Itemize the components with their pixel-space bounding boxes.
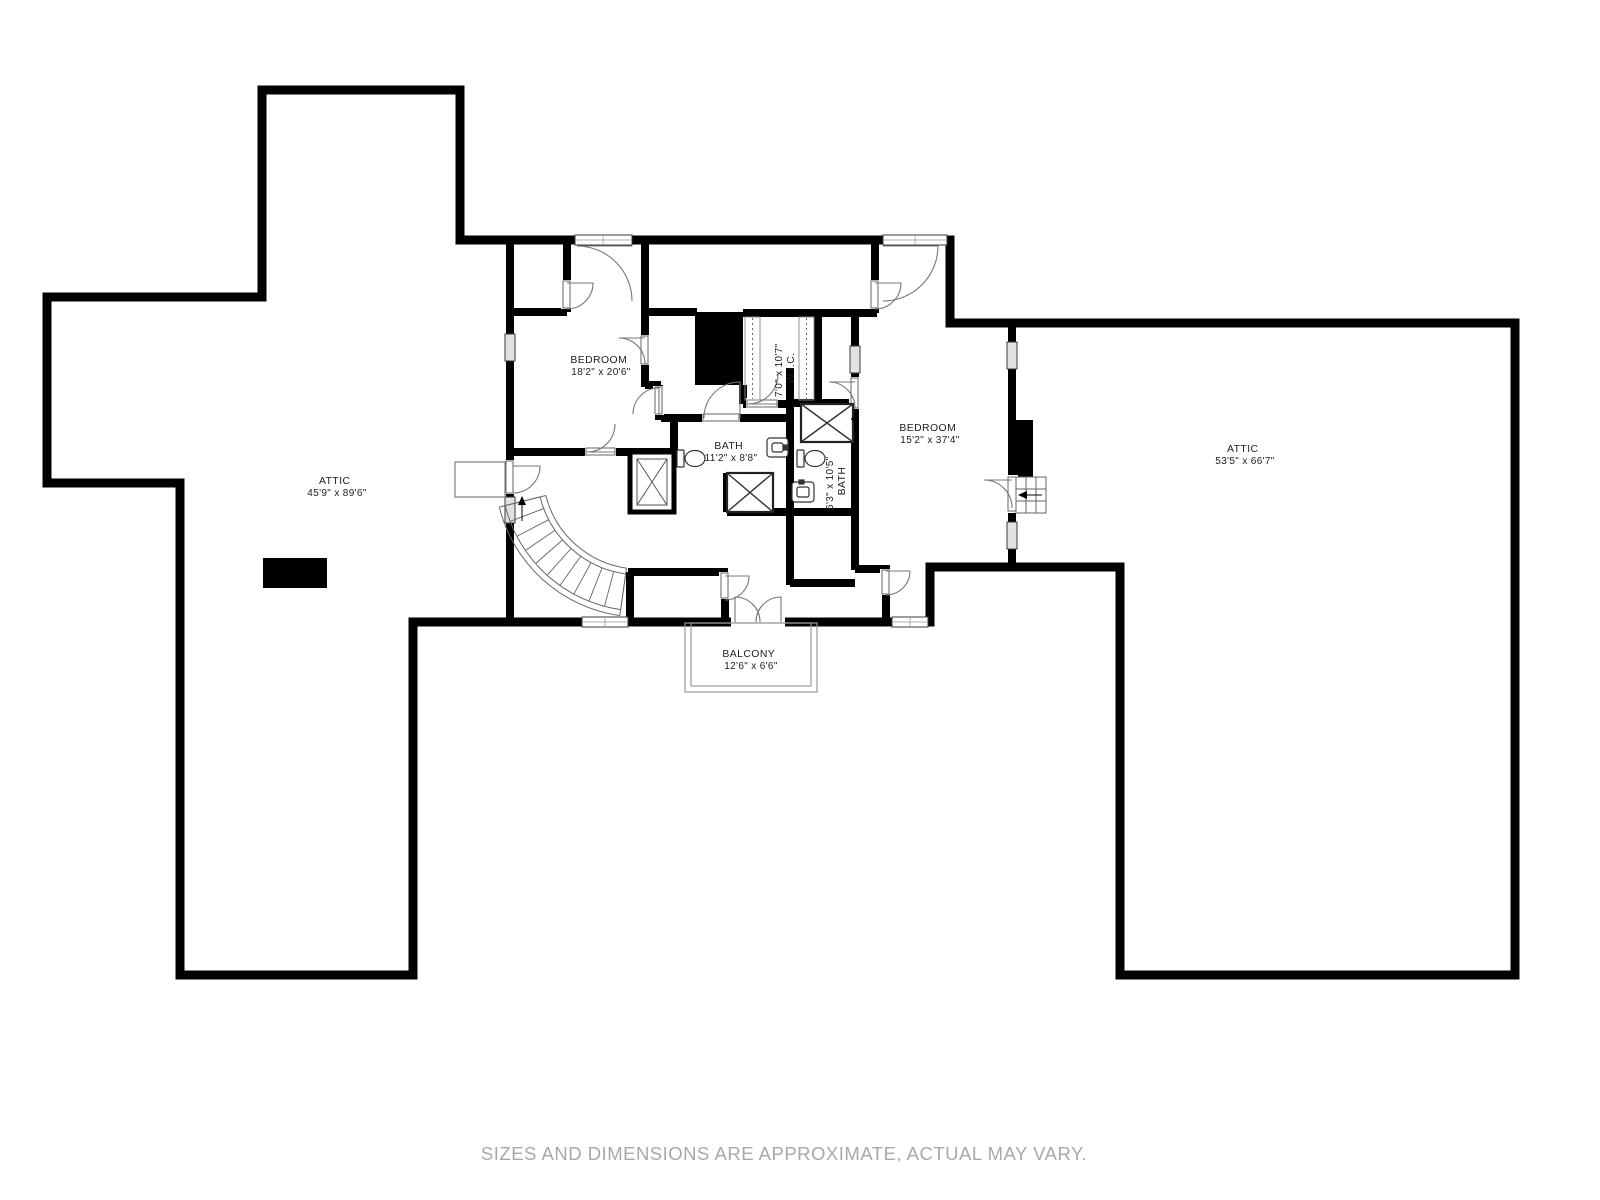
room-label-bath-main: BATH 11'2" x 8'8" [705,436,758,464]
room-label-attic-right: ATTIC 53'5" x 66'7" [1215,439,1274,467]
toilet-main [677,450,705,467]
disclaimer-text: SIZES AND DIMENSIONS ARE APPROXIMATE, AC… [0,1143,1568,1165]
sink-second [792,480,814,502]
shower-second-bath [801,404,857,442]
bathtub [727,473,773,512]
attic-stair-right [1016,477,1046,513]
curved-staircase [499,496,626,616]
room-label-balcony: BALCONY 12'6" x 6'6" [722,644,779,672]
room-label-attic-left: ATTIC 45'9" x 89'6" [307,471,366,499]
chimney-left-attic [263,558,327,588]
stair-hall-dormer [455,462,505,497]
room-label-bedroom-left: BEDROOM 18'2" x 20'6" [570,350,631,378]
floor-plan: ATTIC 45'9" x 89'6" BEDROOM 18'2" x 20'6… [0,0,1600,1200]
chimney-right [1012,420,1033,477]
stair-direction-arrow [518,496,526,521]
sink-main [767,438,788,457]
room-label-bath-small: 6'3" x 10'5" BATH [820,452,848,510]
exterior-walls [47,90,1515,975]
chimney-center [695,312,743,385]
room-label-bedroom-right: BEDROOM 15'2" x 37'4" [899,418,960,446]
shower-stall [630,452,674,512]
